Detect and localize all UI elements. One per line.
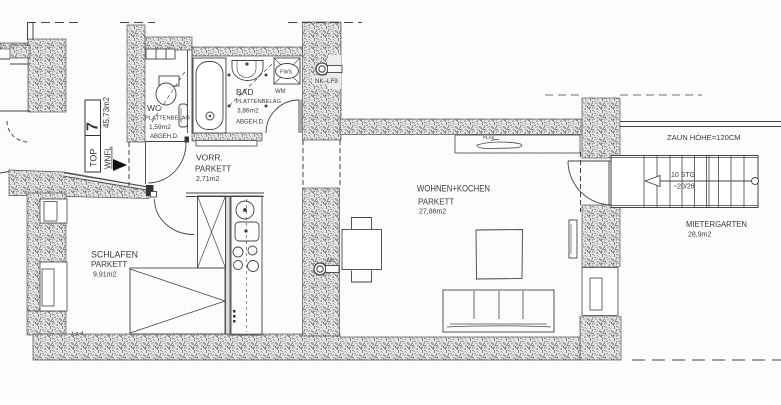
- svg-text:27,86m2: 27,86m2: [419, 209, 446, 216]
- svg-text:FWS: FWS: [280, 70, 293, 76]
- svg-text:t·p·d: t·p·d: [72, 331, 83, 337]
- svg-text:9,91m2: 9,91m2: [93, 272, 116, 279]
- svg-text:PARKETT: PARKETT: [195, 165, 231, 174]
- svg-text:ABGEH.D.: ABGEH.D.: [236, 120, 265, 126]
- svg-text:ABGEH.D.: ABGEH.D.: [150, 134, 179, 140]
- svg-text:45,73m2: 45,73m2: [102, 96, 111, 128]
- svg-text:WC: WC: [147, 103, 161, 113]
- svg-text:BAD: BAD: [236, 87, 253, 97]
- svg-text:ZAUN HÖHE=120CM: ZAUN HÖHE=120CM: [667, 133, 741, 142]
- svg-text:VORR.: VORR.: [196, 153, 223, 163]
- svg-text:TOP: TOP: [89, 149, 99, 167]
- svg-text:PARKETT: PARKETT: [418, 198, 454, 207]
- svg-text:3,86m2: 3,86m2: [237, 108, 259, 115]
- svg-text:7: 7: [85, 122, 102, 131]
- svg-text:PARKETT: PARKETT: [91, 260, 127, 269]
- svg-text:1,59m2: 1,59m2: [149, 124, 171, 131]
- svg-text:10 STG: 10 STG: [671, 172, 695, 179]
- svg-text:PLAK: PLAK: [483, 135, 495, 140]
- svg-text:WM: WM: [275, 89, 286, 95]
- svg-text:MIETERGARTEN: MIETERGARTEN: [686, 219, 747, 229]
- svg-text:NK–LF9: NK–LF9: [315, 78, 338, 85]
- svg-text:SCHLAFEN: SCHLAFEN: [91, 250, 138, 260]
- svg-text:WNFL: WNFL: [104, 146, 113, 169]
- svg-text:~20/26: ~20/26: [673, 184, 695, 191]
- svg-text:PLATTENBELAG: PLATTENBELAG: [236, 99, 281, 105]
- svg-text:28,9m2: 28,9m2: [688, 232, 711, 239]
- svg-text:2,71m2: 2,71m2: [196, 176, 219, 183]
- svg-text:PLATTENBELAG: PLATTENBELAG: [145, 116, 190, 122]
- svg-text:NK: NK: [327, 258, 335, 264]
- svg-text:WOHNEN+KOCHEN: WOHNEN+KOCHEN: [417, 184, 490, 194]
